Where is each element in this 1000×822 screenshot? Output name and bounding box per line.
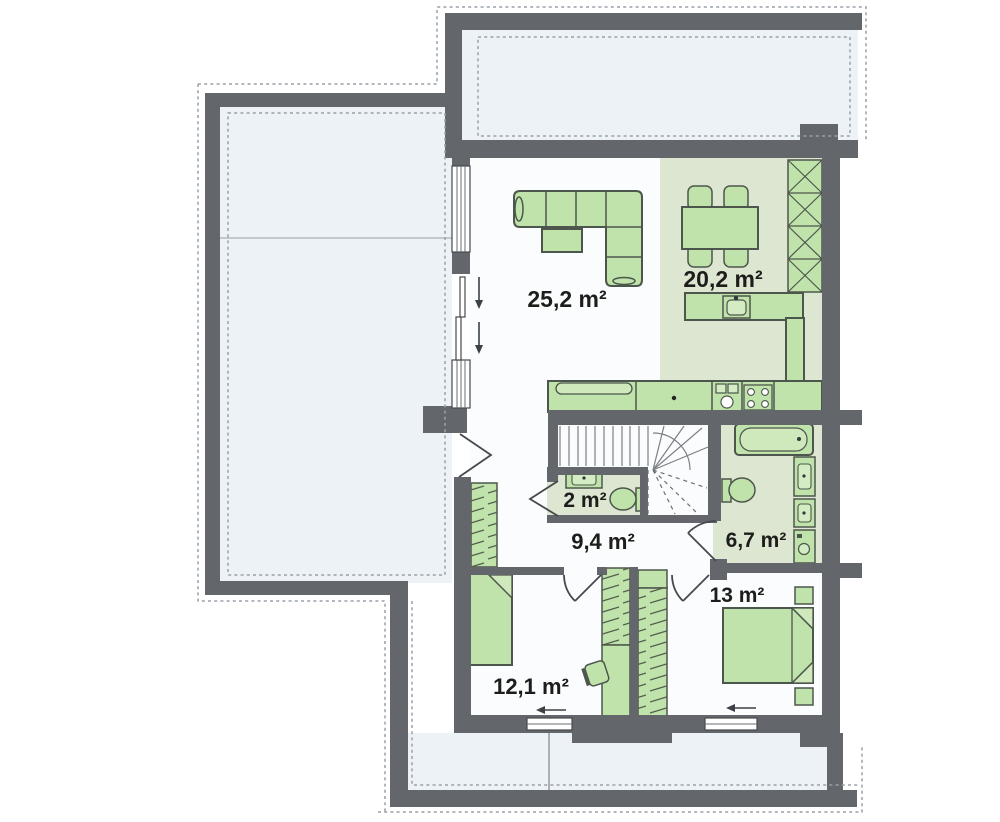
wardrobe [602,568,630,645]
top-terrace-floor [462,30,858,142]
washing-machine [794,530,815,563]
floor-plan-drawing: 25,2 m² 20,2 m² 2 m² 9,4 m² 6,7 m² 13 m²… [0,0,1000,822]
bedroom-left-area-label: 12,1 m² [493,674,569,699]
left-terrace-floor [220,107,452,583]
window [452,360,470,408]
toilet [722,478,755,502]
sliding-door-leaf [456,317,461,360]
sliding-door-leaf [460,277,465,317]
floor-plan: 25,2 m² 20,2 m² 2 m² 9,4 m² 6,7 m² 13 m²… [0,0,1000,822]
dining-table [682,207,758,249]
nightstand [795,587,813,604]
kitchen-dining-area-label: 20,2 m² [683,266,763,292]
living-room-area-label: 25,2 m² [527,286,607,312]
single-bed [470,573,512,665]
bathroom-area-label: 6,7 m² [726,529,787,552]
tall-cabinet [788,160,822,292]
wc-toilet [610,488,645,511]
double-bed [723,608,813,683]
window [452,166,470,252]
window [705,718,757,730]
shelf [638,570,667,588]
stove [744,385,772,410]
wc-area-label: 2 m² [563,489,606,512]
kitchen-counter-side [786,318,804,383]
coffee-table [542,229,582,252]
window [527,718,572,730]
sideboard-top [556,383,632,394]
bathroom-sinks [794,457,815,527]
bedroom-right-area-label: 13 m² [710,584,765,607]
wardrobe [471,483,497,567]
nightstand [795,688,813,705]
bathtub [735,424,813,455]
hall-area-label: 9,4 m² [571,529,635,554]
wardrobe [638,588,667,718]
